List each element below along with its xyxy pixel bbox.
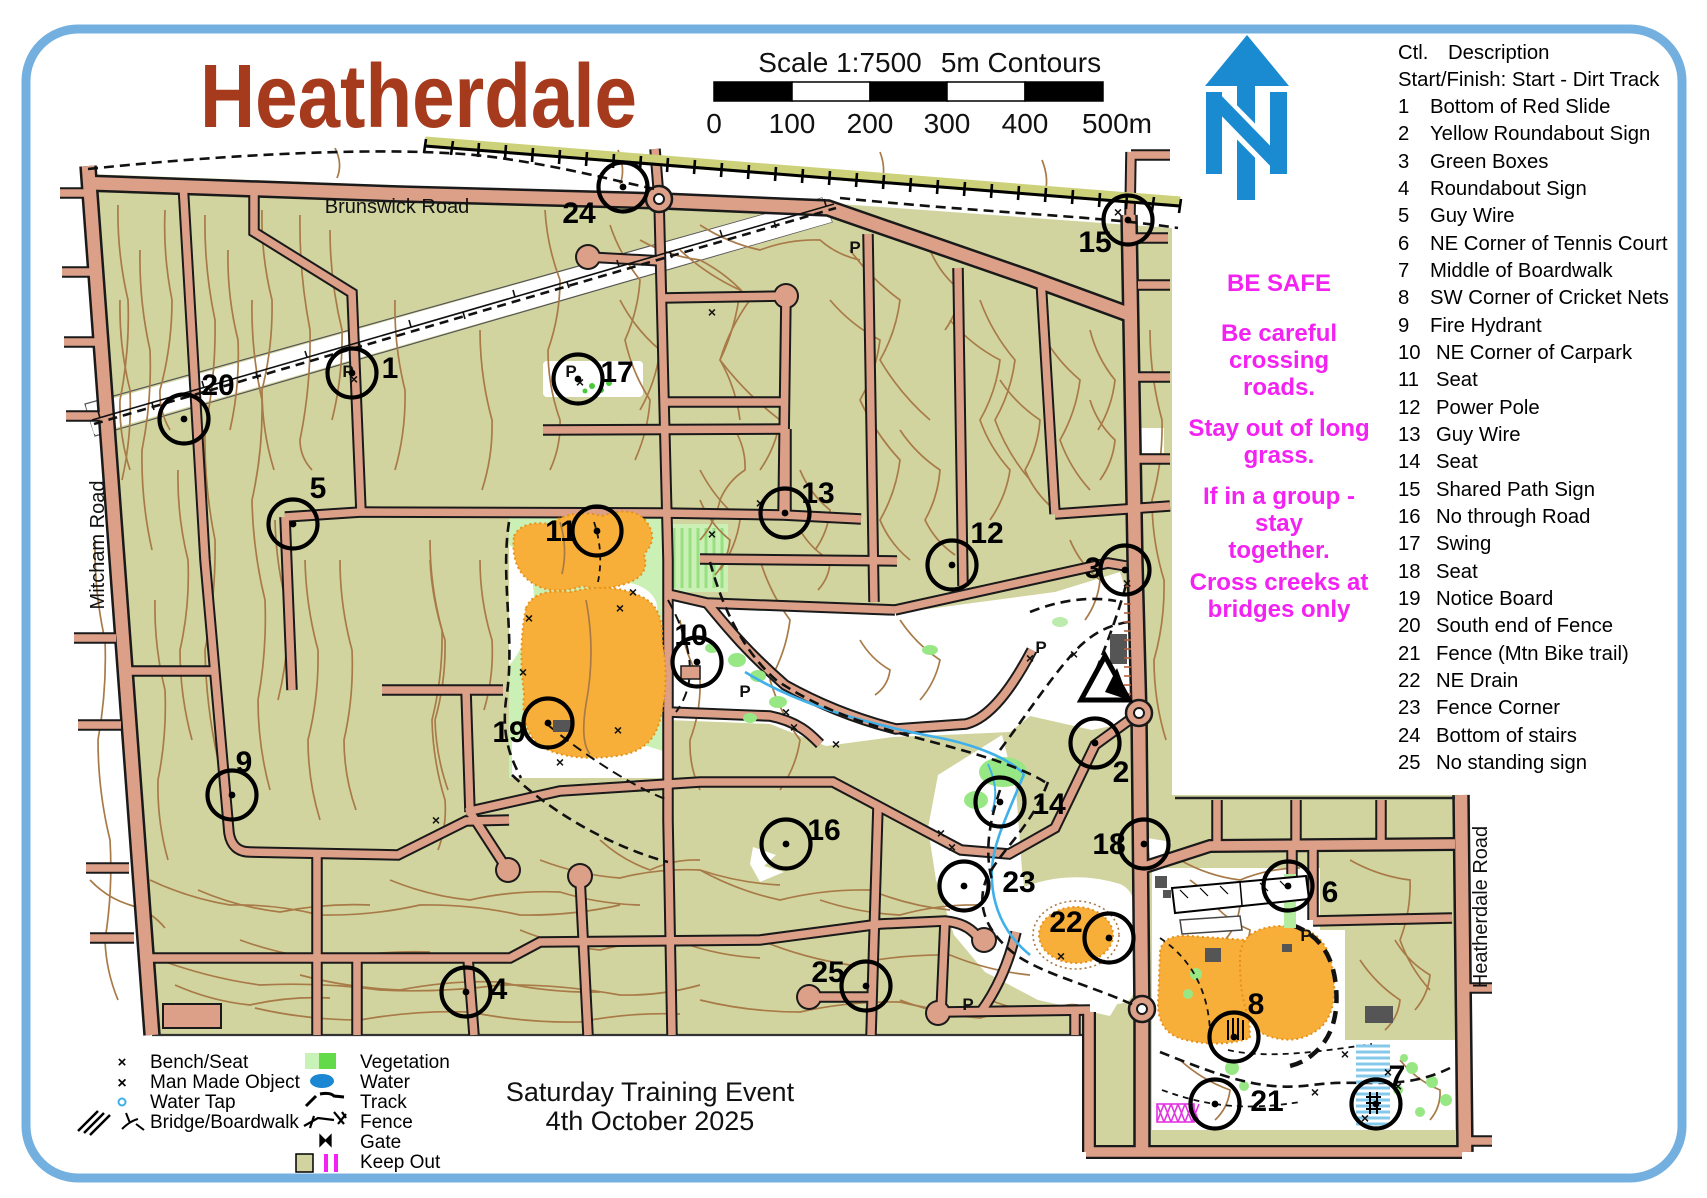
svg-text:16: 16 xyxy=(807,814,840,847)
svg-text:Bridge/Boardwalk: Bridge/Boardwalk xyxy=(150,1112,299,1133)
svg-text:23: 23 xyxy=(1398,697,1421,719)
svg-text:×: × xyxy=(790,719,798,735)
svg-text:14: 14 xyxy=(1032,788,1066,821)
svg-text:15: 15 xyxy=(1398,479,1421,501)
svg-text:×: × xyxy=(629,584,637,600)
svg-text:Water: Water xyxy=(360,1072,411,1093)
svg-text:0: 0 xyxy=(706,108,722,139)
svg-text:11: 11 xyxy=(545,515,577,548)
svg-text:×: × xyxy=(118,1054,127,1071)
svg-text:×: × xyxy=(1123,575,1131,591)
svg-text:200: 200 xyxy=(847,108,894,139)
svg-text:8: 8 xyxy=(1398,287,1409,309)
svg-text:Gate: Gate xyxy=(360,1132,401,1153)
svg-text:Bottom of stairs: Bottom of stairs xyxy=(1436,725,1577,747)
svg-text:P: P xyxy=(962,995,973,1014)
svg-text:11: 11 xyxy=(1398,369,1419,391)
svg-text:P: P xyxy=(1035,638,1046,657)
svg-text:×: × xyxy=(1026,650,1034,666)
svg-text:Saturday Training Event: Saturday Training Event xyxy=(506,1077,795,1107)
svg-text:South end of Fence: South end of Fence xyxy=(1436,615,1613,637)
svg-text:Power Pole: Power Pole xyxy=(1436,397,1540,419)
svg-text:×: × xyxy=(708,526,716,542)
svg-text:19: 19 xyxy=(1398,588,1421,610)
svg-text:4th October 2025: 4th October 2025 xyxy=(546,1106,755,1136)
svg-text:Cross creeks at: Cross creeks at xyxy=(1190,569,1369,596)
svg-text:9: 9 xyxy=(236,746,253,779)
svg-text:No standing sign: No standing sign xyxy=(1436,752,1587,774)
svg-text:1: 1 xyxy=(382,352,399,385)
svg-text:P: P xyxy=(1300,926,1311,945)
svg-text:×: × xyxy=(832,736,840,752)
svg-text:500m: 500m xyxy=(1082,108,1152,139)
svg-text:Keep Out: Keep Out xyxy=(360,1152,441,1173)
svg-text:×: × xyxy=(1311,1084,1319,1100)
svg-text:Fire Hydrant: Fire Hydrant xyxy=(1430,315,1542,337)
svg-text:4: 4 xyxy=(1398,178,1409,200)
svg-text:×: × xyxy=(948,839,956,855)
svg-text:×: × xyxy=(432,812,440,828)
svg-text:6: 6 xyxy=(1398,233,1409,255)
svg-text:×: × xyxy=(1070,646,1078,662)
svg-text:7: 7 xyxy=(1398,260,1409,282)
svg-text:8: 8 xyxy=(1248,988,1265,1021)
svg-text:20: 20 xyxy=(201,369,234,402)
svg-text:3: 3 xyxy=(1398,151,1409,173)
svg-text:Bottom of Red Slide: Bottom of Red Slide xyxy=(1430,96,1610,118)
svg-text:P: P xyxy=(849,238,860,257)
svg-text:4: 4 xyxy=(491,973,508,1006)
svg-text:20: 20 xyxy=(1398,615,1421,637)
svg-text:19: 19 xyxy=(492,716,525,749)
svg-text:Green Boxes: Green Boxes xyxy=(1430,151,1548,173)
svg-text:6: 6 xyxy=(1322,876,1339,909)
svg-text:14: 14 xyxy=(1398,451,1421,473)
svg-text:×: × xyxy=(616,600,624,616)
svg-text:Ctl.: Ctl. xyxy=(1398,42,1428,64)
svg-text:Track: Track xyxy=(360,1092,407,1113)
svg-text:×: × xyxy=(782,704,790,720)
svg-text:21: 21 xyxy=(1250,1085,1283,1118)
svg-text:18: 18 xyxy=(1092,828,1125,861)
svg-text:Stay out of long: Stay out of long xyxy=(1188,415,1369,442)
svg-text:×: × xyxy=(614,722,622,738)
svg-text:9: 9 xyxy=(1398,315,1409,337)
svg-text:17: 17 xyxy=(1398,533,1421,555)
svg-text:Man Made Object: Man Made Object xyxy=(150,1072,301,1093)
svg-text:Heatherdale Road: Heatherdale Road xyxy=(1470,826,1492,988)
svg-text:×: × xyxy=(1341,1046,1349,1062)
svg-text:Roundabout Sign: Roundabout Sign xyxy=(1430,178,1587,200)
svg-text:Swing: Swing xyxy=(1436,533,1491,555)
svg-text:2: 2 xyxy=(1113,756,1130,789)
svg-text:crossing: crossing xyxy=(1229,347,1329,374)
svg-text:100: 100 xyxy=(769,108,816,139)
svg-text:Fence Corner: Fence Corner xyxy=(1436,697,1560,719)
svg-text:Fence: Fence xyxy=(360,1112,413,1133)
svg-text:15: 15 xyxy=(1078,226,1111,259)
svg-text:Start/Finish: Start - Dirt Tra: Start/Finish: Start - Dirt Track xyxy=(1398,69,1660,91)
svg-text:Bench/Seat: Bench/Seat xyxy=(150,1052,249,1073)
svg-text:25: 25 xyxy=(811,956,844,989)
svg-text:22: 22 xyxy=(1398,670,1421,692)
svg-text:bridges only: bridges only xyxy=(1208,596,1351,623)
svg-text:3: 3 xyxy=(1085,552,1102,585)
svg-text:23: 23 xyxy=(1002,866,1035,899)
svg-text:NE Corner of Carpark: NE Corner of Carpark xyxy=(1436,342,1633,364)
svg-text:NE Corner of Tennis Court: NE Corner of Tennis Court xyxy=(1430,233,1668,255)
svg-text:Middle of Boardwalk: Middle of Boardwalk xyxy=(1430,260,1613,282)
svg-text:roads.: roads. xyxy=(1243,374,1315,401)
svg-text:21: 21 xyxy=(1398,643,1421,665)
svg-text:22: 22 xyxy=(1049,906,1082,939)
svg-text:16: 16 xyxy=(1398,506,1421,528)
svg-text:If in a group -: If in a group - xyxy=(1203,483,1355,510)
svg-text:2: 2 xyxy=(1398,123,1409,145)
svg-text:No through Road: No through Road xyxy=(1436,506,1590,528)
svg-text:P: P xyxy=(739,682,750,701)
svg-text:×: × xyxy=(117,1075,126,1092)
svg-text:NE Drain: NE Drain xyxy=(1436,670,1518,692)
svg-text:Vegetation: Vegetation xyxy=(360,1052,450,1073)
svg-text:SW Corner of Cricket Nets: SW Corner of Cricket Nets xyxy=(1430,287,1669,309)
svg-text:12: 12 xyxy=(1398,397,1421,419)
svg-text:×: × xyxy=(519,664,527,680)
svg-text:1: 1 xyxy=(1398,96,1409,118)
svg-text:Seat: Seat xyxy=(1436,369,1478,391)
svg-text:400: 400 xyxy=(1002,108,1049,139)
svg-text:17: 17 xyxy=(600,356,633,389)
svg-text:×: × xyxy=(525,610,533,626)
svg-text:18: 18 xyxy=(1398,561,1421,583)
svg-text:Seat: Seat xyxy=(1436,451,1478,473)
svg-text:24: 24 xyxy=(562,197,596,230)
svg-text:grass.: grass. xyxy=(1244,442,1315,469)
svg-text:25: 25 xyxy=(1398,752,1421,774)
svg-text:×: × xyxy=(556,754,564,770)
svg-text:5: 5 xyxy=(1398,205,1409,227)
svg-text:12: 12 xyxy=(970,517,1003,550)
svg-text:300: 300 xyxy=(924,108,971,139)
svg-text:Be careful: Be careful xyxy=(1221,320,1337,347)
svg-text:24: 24 xyxy=(1398,725,1421,747)
svg-text:×: × xyxy=(1114,204,1122,220)
svg-text:×: × xyxy=(937,825,945,841)
svg-text:13: 13 xyxy=(801,477,834,510)
svg-text:Seat: Seat xyxy=(1436,561,1478,583)
svg-text:Shared Path Sign: Shared Path Sign xyxy=(1436,479,1595,501)
svg-text:Mitcham Road: Mitcham Road xyxy=(87,481,109,610)
svg-text:stay: stay xyxy=(1255,510,1304,537)
svg-text:10: 10 xyxy=(1398,342,1421,364)
svg-text:Guy Wire: Guy Wire xyxy=(1430,205,1515,227)
svg-text:Scale 1:7500: Scale 1:7500 xyxy=(758,47,921,78)
svg-text:5m Contours: 5m Contours xyxy=(941,47,1101,78)
svg-text:Notice Board: Notice Board xyxy=(1436,588,1553,610)
svg-text:Heatherdale: Heatherdale xyxy=(200,47,637,147)
svg-text:×: × xyxy=(1057,948,1065,964)
svg-text:5: 5 xyxy=(310,472,327,505)
svg-text:Fence (Mtn Bike trail): Fence (Mtn Bike trail) xyxy=(1436,643,1629,665)
svg-text:Description: Description xyxy=(1448,42,1549,64)
svg-text:BE SAFE: BE SAFE xyxy=(1227,270,1331,297)
svg-text:×: × xyxy=(708,304,716,320)
svg-text:13: 13 xyxy=(1398,424,1421,446)
svg-text:together.: together. xyxy=(1228,537,1329,564)
svg-text:Guy Wire: Guy Wire xyxy=(1436,424,1521,446)
svg-text:Brunswick Road: Brunswick Road xyxy=(325,196,470,218)
svg-text:10: 10 xyxy=(674,619,707,652)
svg-text:Yellow Roundabout Sign: Yellow Roundabout Sign xyxy=(1430,123,1650,145)
svg-text:7: 7 xyxy=(1389,1060,1406,1093)
svg-text:Water Tap: Water Tap xyxy=(150,1092,236,1113)
